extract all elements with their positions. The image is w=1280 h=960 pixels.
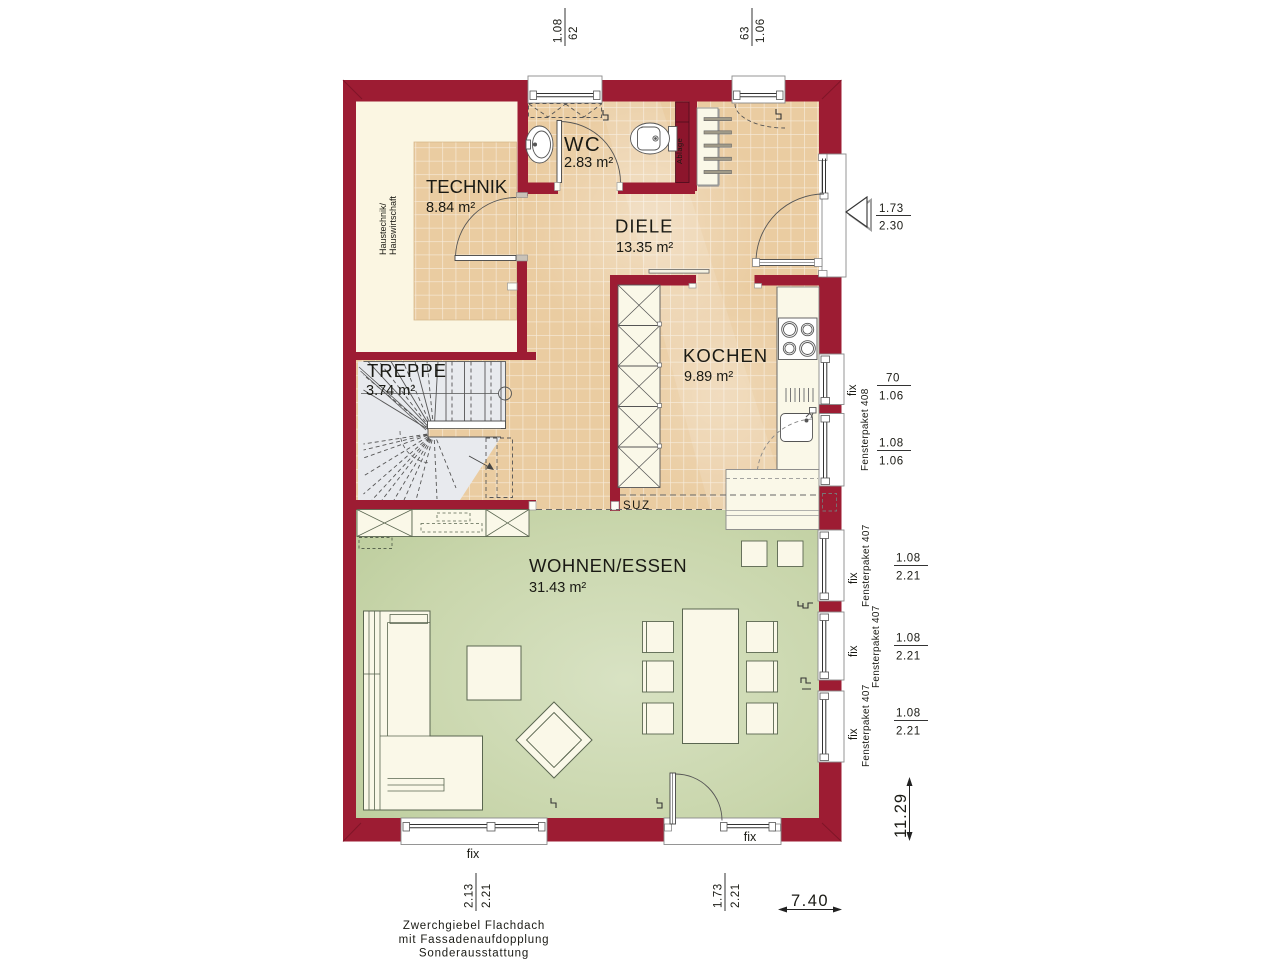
svg-text:WOHNEN/ESSEN: WOHNEN/ESSEN (529, 555, 687, 576)
svg-text:1.08: 1.08 (896, 708, 921, 720)
svg-text:2.21: 2.21 (896, 726, 921, 738)
svg-text:1.08: 1.08 (553, 18, 565, 43)
svg-text:Zwerchgiebel Flachdach: Zwerchgiebel Flachdach (403, 920, 545, 932)
svg-text:11.29: 11.29 (892, 793, 910, 838)
svg-text:fix: fix (744, 830, 757, 844)
svg-text:fix: fix (467, 847, 480, 861)
svg-text:9.89 m²: 9.89 m² (684, 369, 733, 385)
svg-text:Fensterpaket 407: Fensterpaket 407 (871, 605, 882, 688)
svg-text:Fensterpaket 407: Fensterpaket 407 (861, 524, 872, 607)
svg-text:2.13: 2.13 (464, 883, 476, 908)
svg-text:1.08: 1.08 (879, 438, 904, 450)
svg-text:2.83 m²: 2.83 m² (564, 155, 613, 171)
svg-text:1.73: 1.73 (713, 883, 725, 908)
svg-text:Hauswirtschaft: Hauswirtschaft (388, 195, 398, 255)
svg-text:1.06: 1.06 (755, 18, 767, 43)
svg-text:13.35 m²: 13.35 m² (616, 240, 673, 256)
svg-text:2.30: 2.30 (879, 221, 904, 233)
svg-text:2.21: 2.21 (896, 651, 921, 663)
svg-text:Fensterpaket 407: Fensterpaket 407 (861, 684, 872, 767)
svg-text:Fensterpaket 408: Fensterpaket 408 (860, 388, 871, 471)
svg-text:fix: fix (847, 384, 859, 396)
svg-text:Sonderausstattung: Sonderausstattung (419, 948, 529, 960)
svg-text:70: 70 (886, 373, 900, 385)
svg-text:2.21: 2.21 (730, 883, 742, 908)
svg-text:fix: fix (848, 645, 860, 657)
svg-text:7.40: 7.40 (791, 892, 829, 910)
svg-text:2.21: 2.21 (481, 883, 493, 908)
svg-text:62: 62 (568, 26, 580, 40)
svg-text:TREPPE: TREPPE (367, 360, 447, 381)
svg-text:KOCHEN: KOCHEN (683, 345, 768, 366)
svg-text:SUZ: SUZ (623, 500, 651, 512)
svg-text:63: 63 (740, 26, 752, 40)
svg-text:1.06: 1.06 (879, 456, 904, 468)
svg-text:1.06: 1.06 (879, 391, 904, 403)
svg-text:1.08: 1.08 (896, 633, 921, 645)
svg-text:mit Fassadenaufdopplung: mit Fassadenaufdopplung (399, 934, 550, 946)
svg-text:DIELE: DIELE (615, 216, 673, 237)
svg-text:WC: WC (564, 133, 601, 156)
svg-text:TECHNIK: TECHNIK (426, 176, 508, 197)
svg-text:1.73: 1.73 (879, 203, 904, 215)
svg-text:2.21: 2.21 (896, 571, 921, 583)
svg-text:8.84 m²: 8.84 m² (426, 200, 475, 216)
svg-text:1.08: 1.08 (896, 553, 921, 565)
svg-text:fix: fix (848, 572, 860, 584)
svg-text:Haustechnik/: Haustechnik/ (378, 202, 388, 255)
svg-text:fix: fix (848, 728, 860, 740)
svg-text:3.74 m²: 3.74 m² (366, 383, 415, 399)
svg-text:31.43 m²: 31.43 m² (529, 580, 586, 596)
